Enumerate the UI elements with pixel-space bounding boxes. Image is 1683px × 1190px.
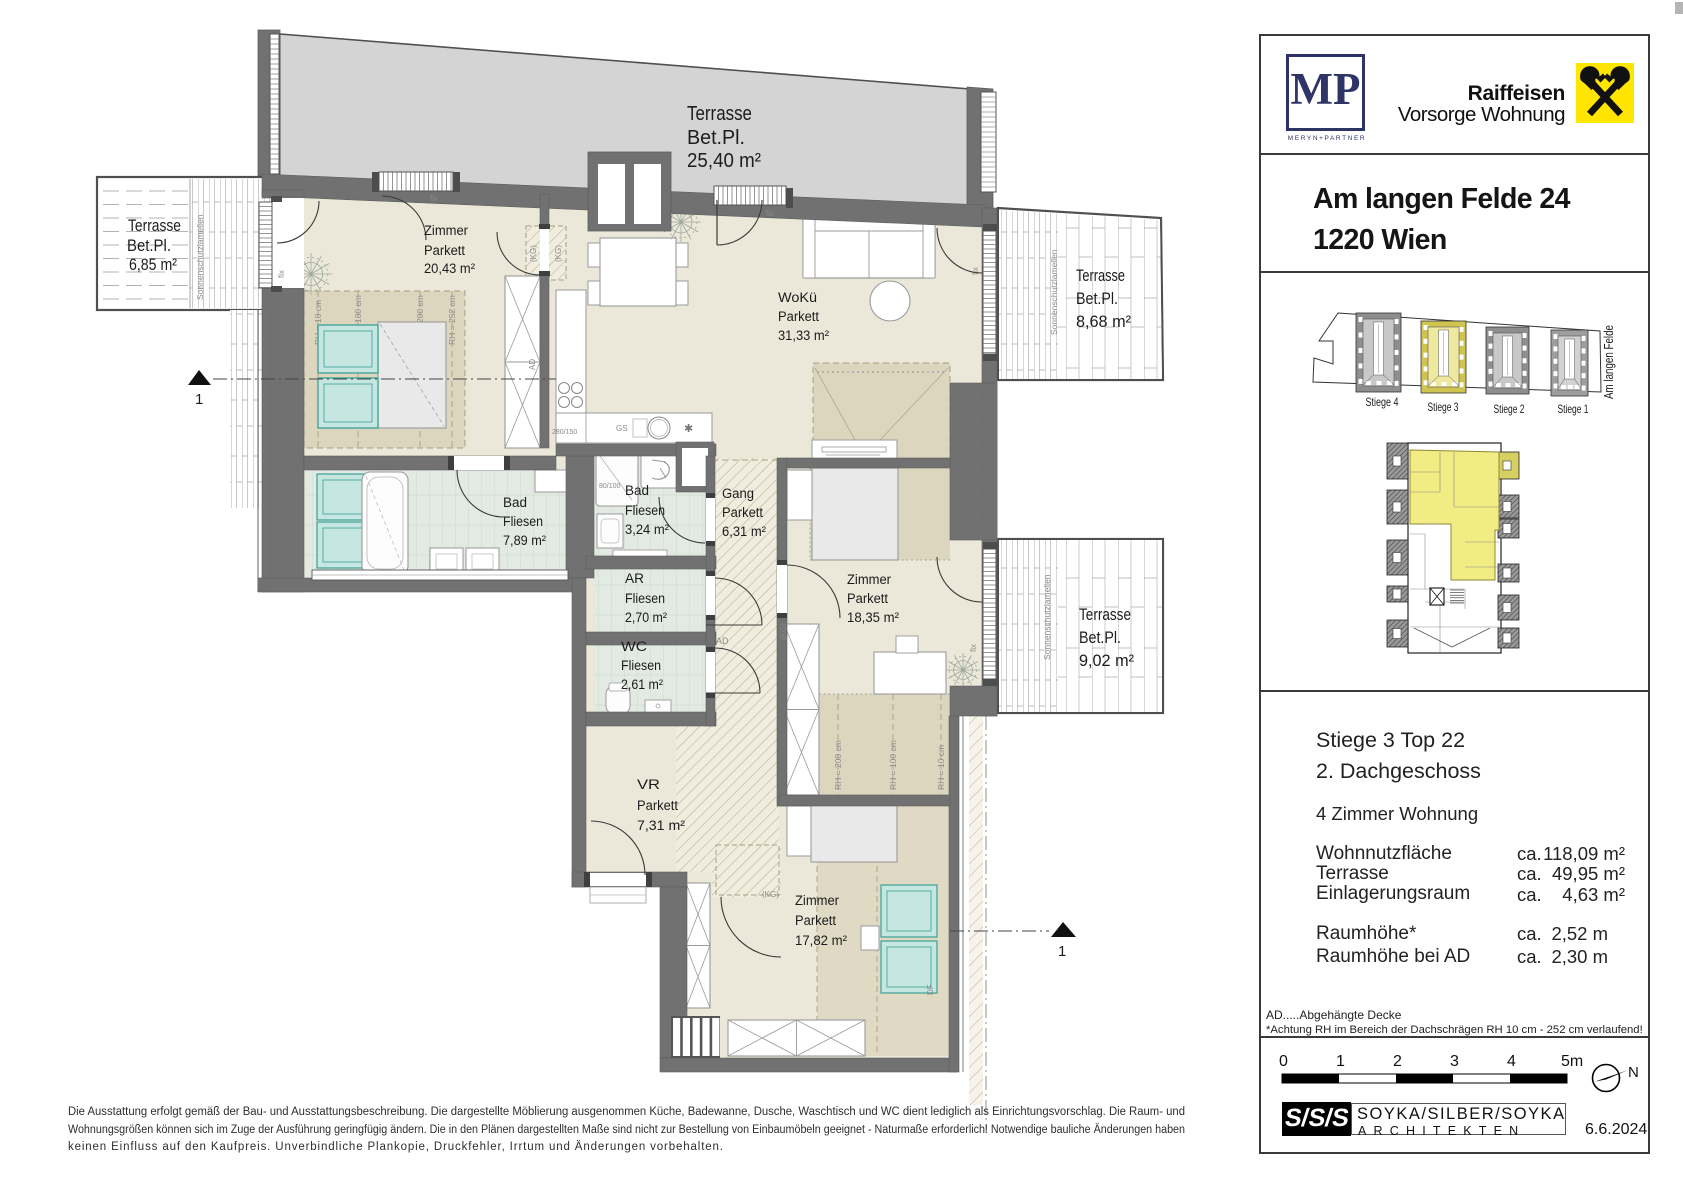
svg-text:Wohnungsgrößen können sich im: Wohnungsgrößen können sich im Zuge der A… <box>68 1124 1185 1136</box>
svg-text:Parkett: Parkett <box>637 798 678 813</box>
svg-text:17,82 m²: 17,82 m² <box>795 933 848 948</box>
svg-text:280/150: 280/150 <box>552 429 577 436</box>
svg-text:AD: AD <box>716 636 729 646</box>
svg-text:AD: AD <box>528 359 537 370</box>
svg-text:Parkett: Parkett <box>424 243 465 258</box>
svg-text:Bad: Bad <box>503 495 527 510</box>
svg-text:1: 1 <box>195 391 203 408</box>
svg-text:4: 4 <box>1507 1053 1516 1070</box>
svg-text:2,61 m²: 2,61 m² <box>621 677 663 692</box>
svg-text:Parkett: Parkett <box>847 591 888 606</box>
svg-text:3,24 m²: 3,24 m² <box>625 522 670 537</box>
svg-text:Terrasse: Terrasse <box>687 103 752 125</box>
svg-text:VR: VR <box>637 777 660 792</box>
svg-text:AR: AR <box>625 571 644 586</box>
svg-text:Stiege 4: Stiege 4 <box>1366 395 1399 409</box>
svg-text:(KG): (KG) <box>762 890 779 899</box>
svg-text:N: N <box>1628 1064 1639 1081</box>
svg-text:(KG): (KG) <box>529 245 538 262</box>
svg-text:2,70 m²: 2,70 m² <box>625 610 667 625</box>
svg-text:Terrasse: Terrasse <box>128 216 181 235</box>
svg-text:9,02 m²: 9,02 m² <box>1079 652 1134 670</box>
svg-text:Parkett: Parkett <box>778 309 819 324</box>
svg-text:(KG): (KG) <box>779 623 788 640</box>
svg-text:Terrasse: Terrasse <box>1079 606 1131 624</box>
svg-text:18,35 m²: 18,35 m² <box>847 610 900 625</box>
svg-text:2: 2 <box>1393 1053 1402 1070</box>
svg-text:Sonnenschutzlamellen: Sonnenschutzlamellen <box>1049 249 1059 335</box>
svg-text:fix: fix <box>766 209 774 218</box>
svg-text:DF: DF <box>926 984 935 995</box>
svg-text:Am langen Felde: Am langen Felde <box>1602 325 1616 399</box>
svg-text:1: 1 <box>1058 943 1066 960</box>
svg-text:Zimmer: Zimmer <box>795 893 840 908</box>
svg-text:WC: WC <box>621 639 647 654</box>
svg-text:Stiege 2: Stiege 2 <box>1494 402 1525 416</box>
svg-text:1: 1 <box>1336 1053 1345 1070</box>
svg-text:Bet.Pl.: Bet.Pl. <box>1076 290 1118 308</box>
svg-text:fix: fix <box>971 267 980 275</box>
svg-text:✱: ✱ <box>684 423 693 435</box>
svg-text:7,31 m²: 7,31 m² <box>637 818 686 833</box>
svg-text:keinen Einfluss auf den Kaufpr: keinen Einfluss auf den Kaufpreis. Unver… <box>68 1141 723 1153</box>
svg-text:RH = 200 cm: RH = 200 cm <box>833 740 843 790</box>
svg-text:5m: 5m <box>1561 1053 1583 1070</box>
svg-text:Bad: Bad <box>625 483 649 498</box>
svg-text:Fliesen: Fliesen <box>625 503 665 518</box>
svg-text:RH = 10 cm: RH = 10 cm <box>936 745 946 790</box>
svg-text:8,68 m²: 8,68 m² <box>1076 313 1131 331</box>
svg-text:Die Ausstattung erfolgt gemäß: Die Ausstattung erfolgt gemäß der Bau- u… <box>68 1106 1185 1118</box>
svg-text:RH = 100 cm: RH = 100 cm <box>888 740 898 790</box>
svg-text:fix: fix <box>430 194 438 203</box>
svg-text:Gang: Gang <box>722 486 754 501</box>
svg-text:6,31 m²: 6,31 m² <box>722 524 767 539</box>
svg-text:GS: GS <box>616 424 628 433</box>
svg-text:fix: fix <box>277 270 286 278</box>
svg-text:Zimmer: Zimmer <box>424 223 469 238</box>
svg-text:7,89 m²: 7,89 m² <box>503 533 547 548</box>
svg-text:Fliesen: Fliesen <box>625 591 665 606</box>
svg-text:31,33 m²: 31,33 m² <box>778 328 830 343</box>
svg-text:Bet.Pl.: Bet.Pl. <box>127 236 171 255</box>
svg-text:Bet.Pl.: Bet.Pl. <box>1079 629 1121 647</box>
svg-text:20,43 m²: 20,43 m² <box>424 261 476 276</box>
svg-text:Fliesen: Fliesen <box>503 514 543 529</box>
svg-text:Bet.Pl.: Bet.Pl. <box>687 127 745 149</box>
svg-text:3: 3 <box>1450 1053 1459 1070</box>
svg-text:Parkett: Parkett <box>795 913 836 928</box>
svg-text:WoKü: WoKü <box>778 290 817 305</box>
svg-text:Sonnenschutzlamellen: Sonnenschutzlamellen <box>195 214 205 300</box>
svg-text:25,40 m²: 25,40 m² <box>687 150 761 172</box>
svg-text:Fliesen: Fliesen <box>621 658 661 673</box>
svg-text:Stiege 1: Stiege 1 <box>1558 402 1589 416</box>
svg-text:Parkett: Parkett <box>722 505 763 520</box>
svg-text:80/100: 80/100 <box>599 483 621 490</box>
svg-text:0: 0 <box>1279 1053 1288 1070</box>
svg-text:Terrasse: Terrasse <box>1076 267 1125 285</box>
svg-text:fix: fix <box>969 644 978 652</box>
svg-text:6,85 m²: 6,85 m² <box>129 255 177 274</box>
svg-text:Zimmer: Zimmer <box>847 572 892 587</box>
svg-text:(KG): (KG) <box>554 245 563 262</box>
svg-text:RH = 252 cm: RH = 252 cm <box>447 295 457 345</box>
svg-text:Sonnenschutzlamellen: Sonnenschutzlamellen <box>1042 574 1052 660</box>
svg-text:Stiege 3: Stiege 3 <box>1428 400 1459 414</box>
